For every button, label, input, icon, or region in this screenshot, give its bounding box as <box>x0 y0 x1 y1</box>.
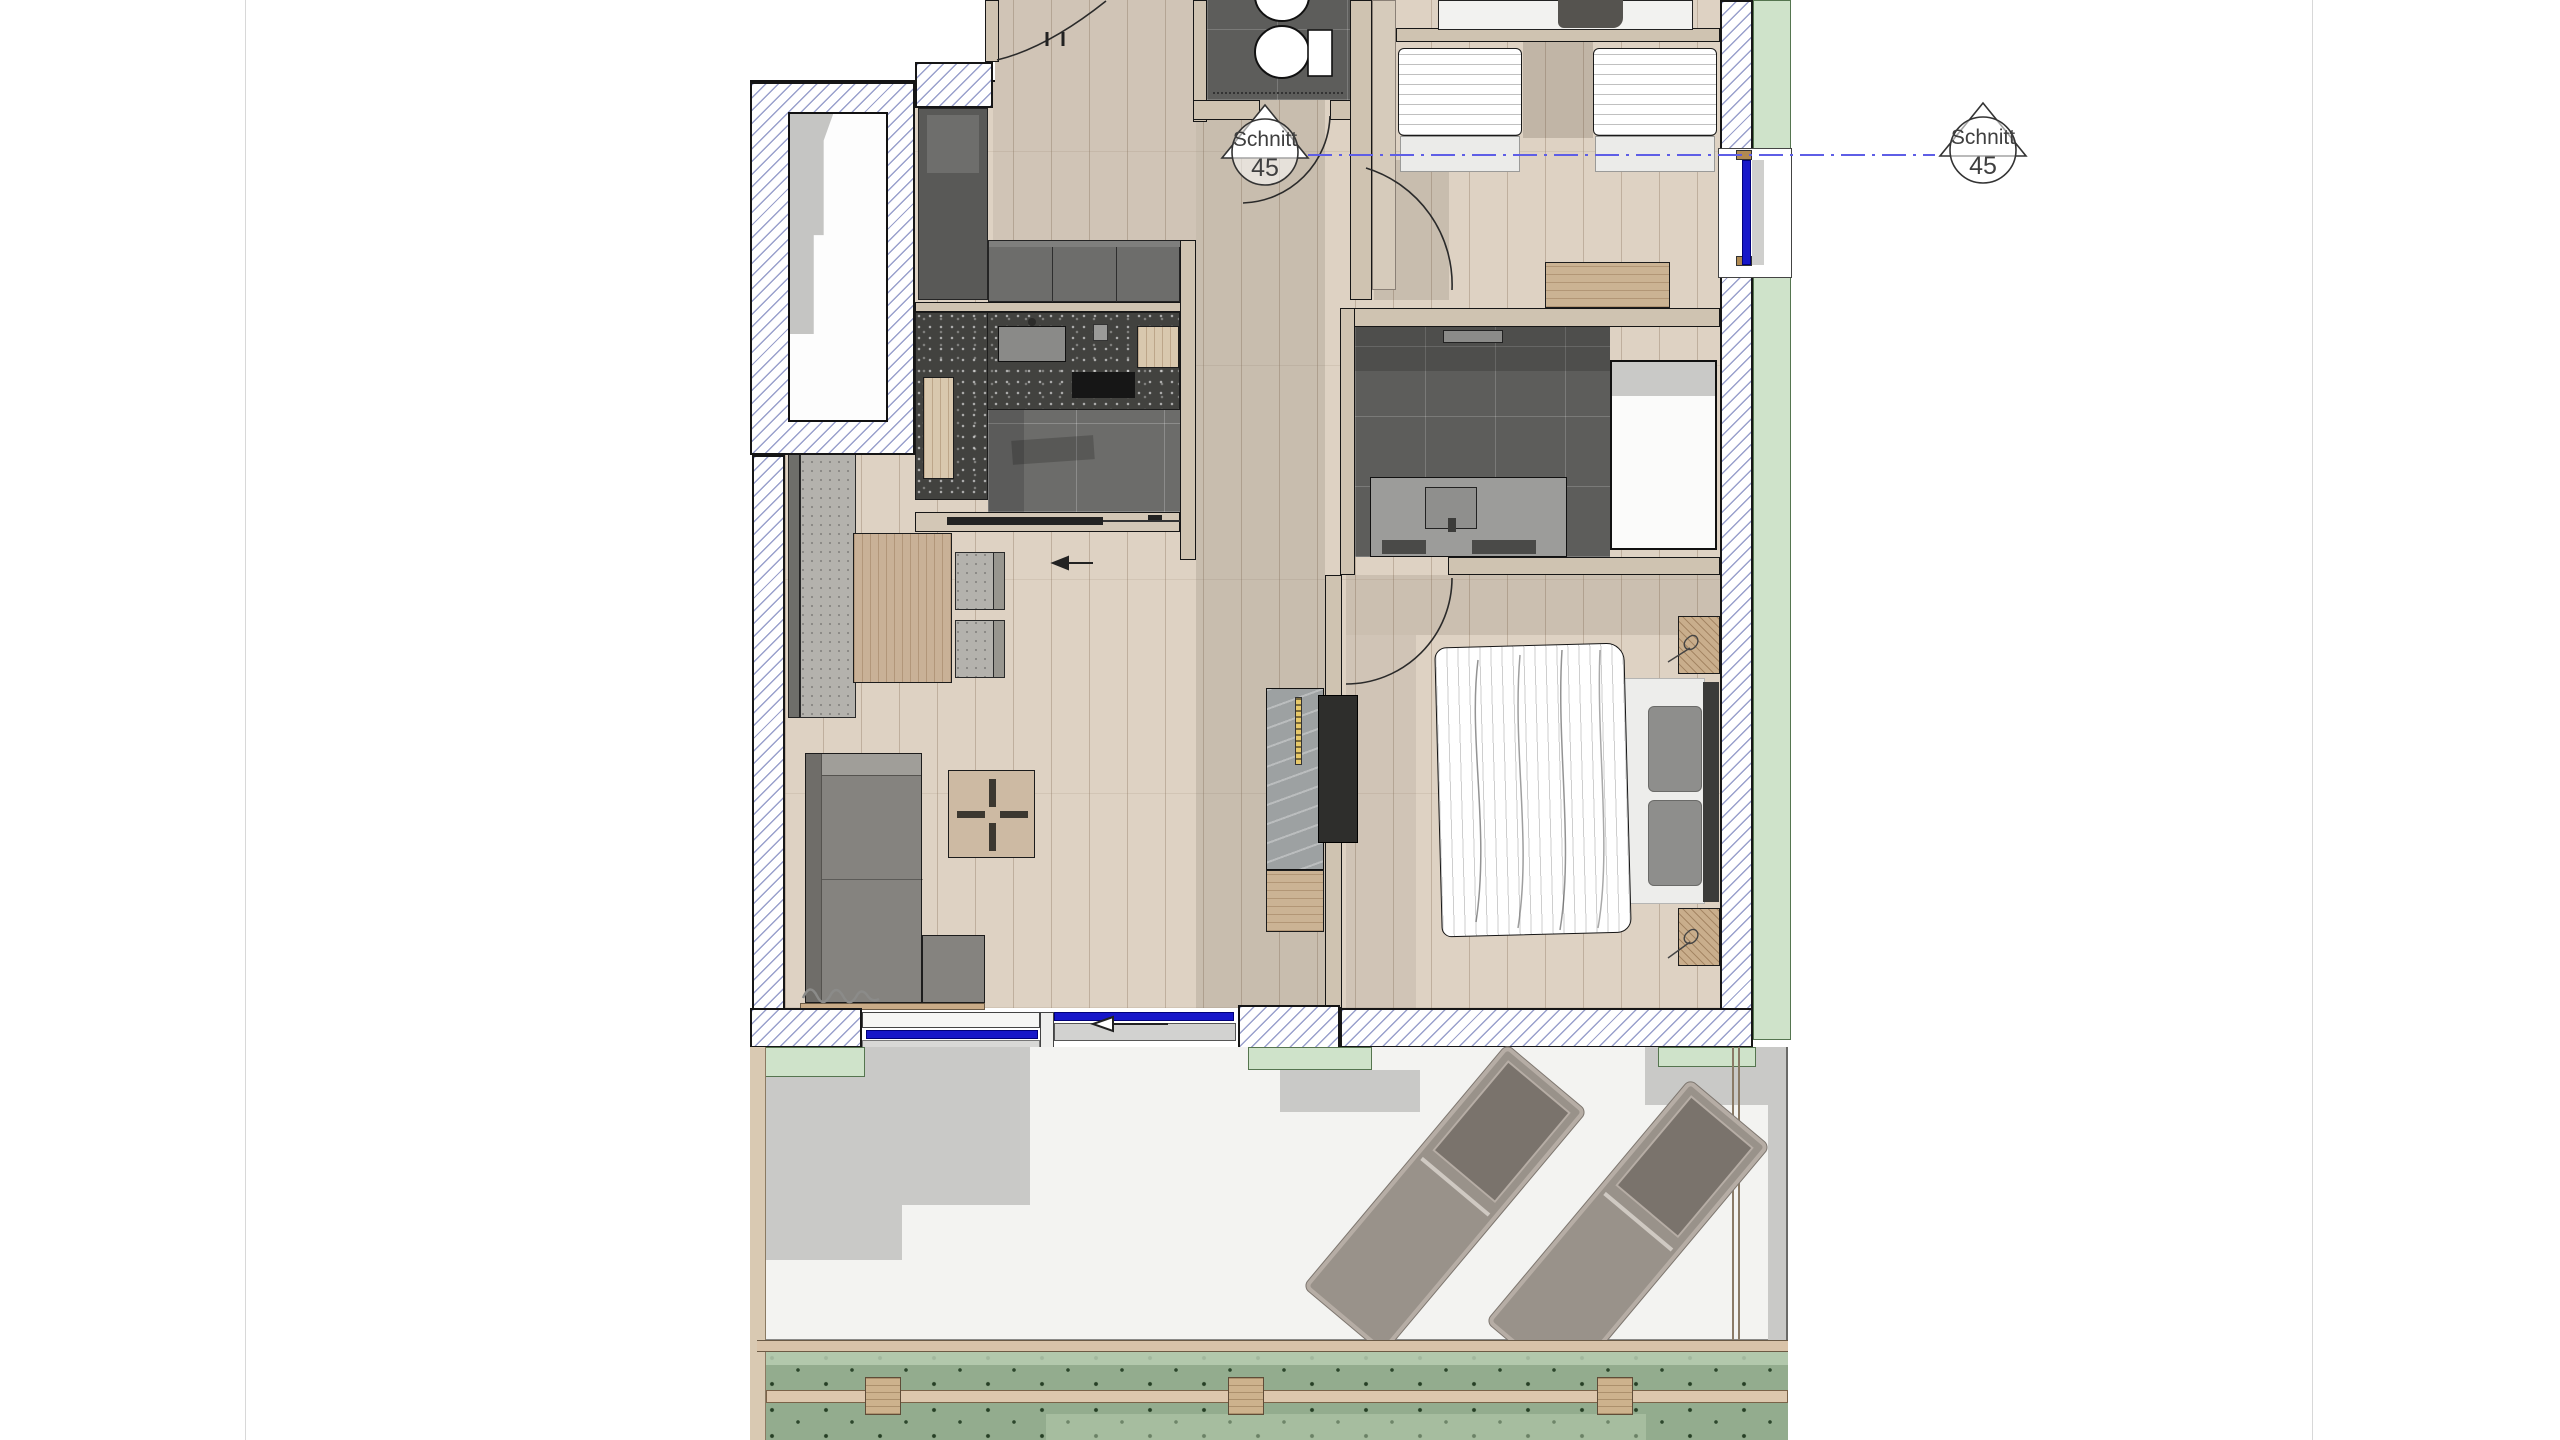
sliding-door-track <box>1103 520 1180 522</box>
wall-wedge-top <box>915 62 993 108</box>
green-cap-right <box>1658 1047 1756 1067</box>
vanity-mat <box>1382 540 1426 554</box>
terrace-left-edge <box>750 1047 766 1440</box>
wall-bottom-left-corner <box>750 1008 862 1048</box>
vanity-faucet <box>1448 518 1456 532</box>
tv-panel <box>1318 695 1358 843</box>
vanity-mat <box>1472 540 1536 554</box>
entrance-door-post <box>985 0 999 62</box>
garden-plank <box>766 1390 1788 1403</box>
bench-back <box>788 450 800 718</box>
section-marker-label: Schnitt <box>1233 128 1297 151</box>
shower-tray <box>1610 360 1717 550</box>
planting-light-patch <box>1046 1414 1646 1440</box>
kitchen-cooktop <box>1072 372 1135 398</box>
cabinet-top-edge <box>989 241 1181 247</box>
sofa-chaise <box>922 935 985 1003</box>
twin-dresser <box>1545 262 1670 308</box>
section-marker-label: Schnitt <box>1951 126 2015 149</box>
wall-twin-ensuite <box>1346 308 1720 327</box>
garden-post <box>865 1377 901 1415</box>
sofa-main <box>805 753 922 1003</box>
wall-left-exterior <box>752 455 785 1010</box>
table-slit <box>989 779 996 807</box>
coffee-table <box>948 770 1035 858</box>
section-marker-number: 45 <box>1251 154 1279 182</box>
dining-chair <box>955 552 1005 610</box>
window-mullion <box>1040 1012 1054 1048</box>
led-strip <box>1295 697 1302 765</box>
cabinet-divider <box>1116 241 1117 303</box>
table-slit <box>1000 811 1028 818</box>
kitchen-small-module <box>1093 324 1108 341</box>
shower-top-band <box>1612 362 1715 396</box>
cutting-board-left <box>923 377 954 479</box>
master-pillow <box>1648 706 1702 792</box>
shaft-interior <box>788 112 888 422</box>
terrace-right-band <box>1768 1047 1788 1340</box>
sliding-panel-bottom <box>1054 1023 1236 1041</box>
sliding-door-panel <box>947 517 1103 525</box>
wall-ensuite-left <box>1340 308 1355 575</box>
page-border-right <box>2312 0 2313 1440</box>
sofa-cushion-line <box>822 879 923 880</box>
terrace-shadow-left2 <box>757 1205 902 1260</box>
twin-bed-left-duvet <box>1398 48 1522 136</box>
master-duvet <box>1434 643 1632 938</box>
master-headboard <box>1703 682 1719 902</box>
chair-back <box>993 621 1004 677</box>
master-top-shadow <box>1346 575 1720 635</box>
twin-room-shadow <box>1523 38 1593 138</box>
sofa-back <box>806 754 822 1002</box>
wall-wc-post <box>1330 100 1352 120</box>
shaft-shadow <box>790 114 833 334</box>
cabinet-divider <box>1052 241 1053 303</box>
wall-master-top <box>1448 557 1720 575</box>
wall-wc-right <box>1350 0 1372 300</box>
terrace-shadow-pier <box>1280 1070 1420 1112</box>
sliding-door-handle <box>1148 515 1162 520</box>
chair-back <box>993 553 1004 609</box>
floorplan-canvas: Schnitt 45 Schnitt 45 <box>0 0 2560 1440</box>
page-border-left <box>245 0 246 1440</box>
section-marker-number: 45 <box>1969 152 1997 180</box>
sofa-armrest <box>806 754 921 776</box>
table-slit <box>989 823 996 851</box>
garden-post <box>1228 1377 1264 1415</box>
planting-top-band <box>766 1352 1788 1365</box>
green-cap-left <box>750 1047 865 1077</box>
kitchen-upper-cabinets <box>988 240 1180 302</box>
glazing-bottom-left <box>866 1030 1038 1039</box>
glazing-bottom-right <box>1054 1012 1234 1021</box>
section-marker-left: Schnitt 45 <box>1202 98 1328 192</box>
dining-bench <box>800 450 856 718</box>
wall-bottom-pier <box>1238 1005 1340 1050</box>
wall-kitchen-right <box>1180 240 1196 560</box>
terrace-rail <box>1732 1047 1740 1340</box>
green-cap-center <box>1248 1047 1372 1070</box>
twin-headboard-band <box>1396 28 1720 42</box>
dining-table <box>853 533 952 683</box>
wall-bottom-master <box>1340 1008 1753 1048</box>
garden-post <box>1597 1377 1633 1415</box>
twin-bed-right-duvet <box>1593 48 1717 136</box>
hall-shadow <box>993 0 1196 240</box>
twin-wardrobe-panel <box>1372 0 1396 290</box>
tall-unit-inner <box>927 115 979 173</box>
wc-threshold-dots <box>1213 92 1343 94</box>
table-slit <box>957 811 985 818</box>
master-pillow <box>1648 800 1702 886</box>
kitchen-sink <box>998 326 1066 362</box>
section-marker-right: Schnitt 45 <box>1920 96 2046 190</box>
dining-chair <box>955 620 1005 678</box>
nightstand-bottom <box>1678 908 1720 966</box>
terrace-wood-edge <box>757 1340 1788 1352</box>
glazing-right-wall <box>1742 160 1751 265</box>
kitchen-faucet <box>1028 318 1036 326</box>
kitchen-counter-wall <box>915 302 1196 312</box>
section-cut-line <box>1308 154 1935 156</box>
ensuite-shelf <box>1443 330 1503 343</box>
tv-sideboard-wood-base <box>1266 870 1324 932</box>
cutting-board-right <box>1137 326 1179 368</box>
window-sill-left <box>862 1012 1040 1028</box>
twin-desk-object <box>1558 0 1623 28</box>
kitchen-tall-unit <box>918 108 988 300</box>
window-shade-right <box>1752 160 1764 265</box>
wc-floor <box>1207 0 1350 100</box>
nightstand-top <box>1678 616 1720 674</box>
